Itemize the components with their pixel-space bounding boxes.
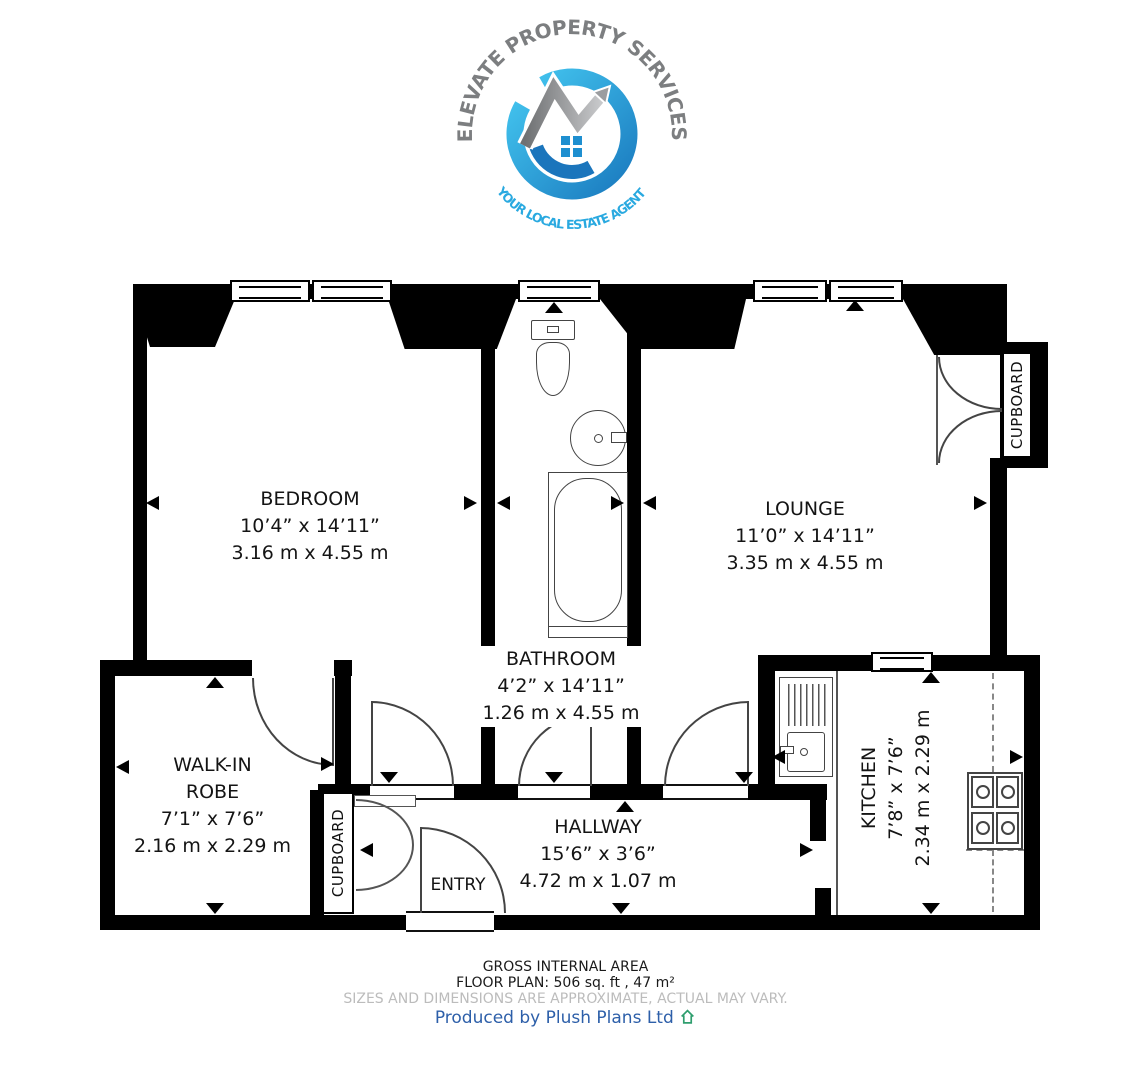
room-name: BATHROOM [448,646,674,673]
bathtub-rim-line [549,626,627,627]
opening-arrow [380,772,398,783]
dimension-arrow [1010,750,1023,764]
counter-edge-line [836,671,838,915]
footer-disclaimer: SIZES AND DIMENSIONS ARE APPROXIMATE, AC… [0,991,1131,1007]
room-label-lounge: LOUNGE 11’0” x 14’11” 3.35 m x 4.55 m [670,496,940,577]
window-reveal [903,299,1007,355]
wall-kitchen-left [758,655,775,790]
room-name: KITCHEN [856,668,883,908]
dimension-arrow [497,496,510,510]
door-threshold-bathroom [518,784,590,800]
room-name: WALK-IN [90,752,335,779]
window-reveal [600,299,746,349]
window-reveal [135,299,235,347]
room-name: HALLWAY [468,814,728,841]
room-size-imperial: 11’0” x 14’11” [670,523,940,550]
cupboard-door-arc [938,357,1002,410]
dimension-arrow [616,801,634,812]
room-size-metric: 3.16 m x 4.55 m [180,540,440,567]
hob-burner [996,812,1019,844]
wall-bottom [100,915,1040,930]
dimension-arrow [206,903,224,914]
cupboard-lounge-label: CUPBOARD [1004,352,1030,458]
logo-house-icon [525,86,610,157]
room-name: ROBE [90,779,335,806]
basin-tap [611,432,627,443]
entry-label: ENTRY [410,872,506,899]
opening-arrow [360,843,373,857]
window [829,280,903,302]
room-size-metric: 2.16 m x 2.29 m [90,833,335,860]
room-label-hallway: HALLWAY 15’6” x 3’6” 4.72 m x 1.07 m [468,814,728,895]
dimension-arrow [462,300,480,311]
dimension-arrow [974,496,987,510]
room-label-walk-in-robe: WALK-IN ROBE 7’1” x 7’6” 2.16 m x 2.29 m [90,752,335,860]
dimension-arrow [206,677,224,688]
footer-credit: Produced by Plush Plans Ltd [0,1008,1131,1028]
room-size-imperial: 4’2” x 14’11” [448,673,674,700]
window [230,280,310,302]
floorplan-page: ELEVATE PROPERTY SERVICES YOUR LOCAL EST… [0,0,1131,1080]
footer-credit-text: Produced by Plush Plans Ltd [435,1008,674,1028]
wall-kitchen-hall-divider [810,793,826,841]
wall-kitchen-hall-stub [815,888,831,916]
door-opening-robe [252,660,334,676]
room-label-bedroom: BEDROOM 10’4” x 14’11” 3.16 m x 4.55 m [180,486,440,567]
toilet-flush-button [547,326,559,333]
entry-door-sill [406,911,494,932]
logo-ring-icon [515,77,629,191]
cupboard-door-face [936,355,938,465]
room-size-metric: 4.72 m x 1.07 m [468,868,728,895]
opening-arrow [545,772,563,783]
window [753,280,827,302]
room-name: LOUNGE [670,496,940,523]
agency-logo: ELEVATE PROPERTY SERVICES YOUR LOCAL EST… [447,12,697,256]
wall-robe-right [335,660,351,792]
hob-burner [971,812,994,844]
sink-drain [800,748,808,756]
basin-drain [594,434,603,443]
room-name: BEDROOM [180,486,440,513]
footer-area-title: GROSS INTERNAL AREA [0,959,1131,975]
logo-window-icon [561,136,582,157]
door-threshold-lounge [663,784,748,800]
dimension-arrow [612,903,630,914]
dimension-arrow [545,302,563,313]
dimension-arrow [772,750,785,764]
window-reveal [388,299,516,349]
plush-plans-house-icon [679,1009,696,1025]
wall-kitchen-right [1024,655,1040,930]
room-size-imperial: 15’6” x 3’6” [468,841,728,868]
window [312,280,392,302]
room-size-metric: 1.26 m x 4.55 m [448,700,674,727]
wall-bedroom-left [133,284,147,668]
toilet-bowl [536,342,570,396]
opening-arrow [800,843,813,857]
sink-drainer-lines [788,684,826,726]
counter-dashed-line [992,673,994,772]
wall-lounge-right-lower [990,458,1007,668]
hob-burner [971,776,994,808]
room-label-bathroom: BATHROOM 4’2” x 14’11” 1.26 m x 4.55 m [448,646,674,727]
cupboard-door-arc [938,410,1002,463]
window [518,280,600,302]
dimension-arrow [464,496,477,510]
room-size-metric: 2.34 m x 2.29 m [910,668,937,908]
room-size-metric: 3.35 m x 4.55 m [670,550,940,577]
dimension-arrow [611,496,624,510]
dimension-arrow [846,300,864,311]
counter-dashed-line [992,850,994,912]
room-size-imperial: 7’1” x 7’6” [90,806,335,833]
room-label-kitchen: KITCHEN 7’8” x 7’6” 2.34 m x 2.29 m [856,668,938,908]
hob-burner [996,776,1019,808]
room-size-imperial: 10’4” x 14’11” [180,513,440,540]
footer-area-detail: FLOOR PLAN: 506 sq. ft , 47 m² [0,975,1131,991]
dimension-arrow [146,496,159,510]
dimension-arrow [643,496,656,510]
opening-arrow [735,772,753,783]
room-size-imperial: 7’8” x 7’6” [883,668,910,908]
